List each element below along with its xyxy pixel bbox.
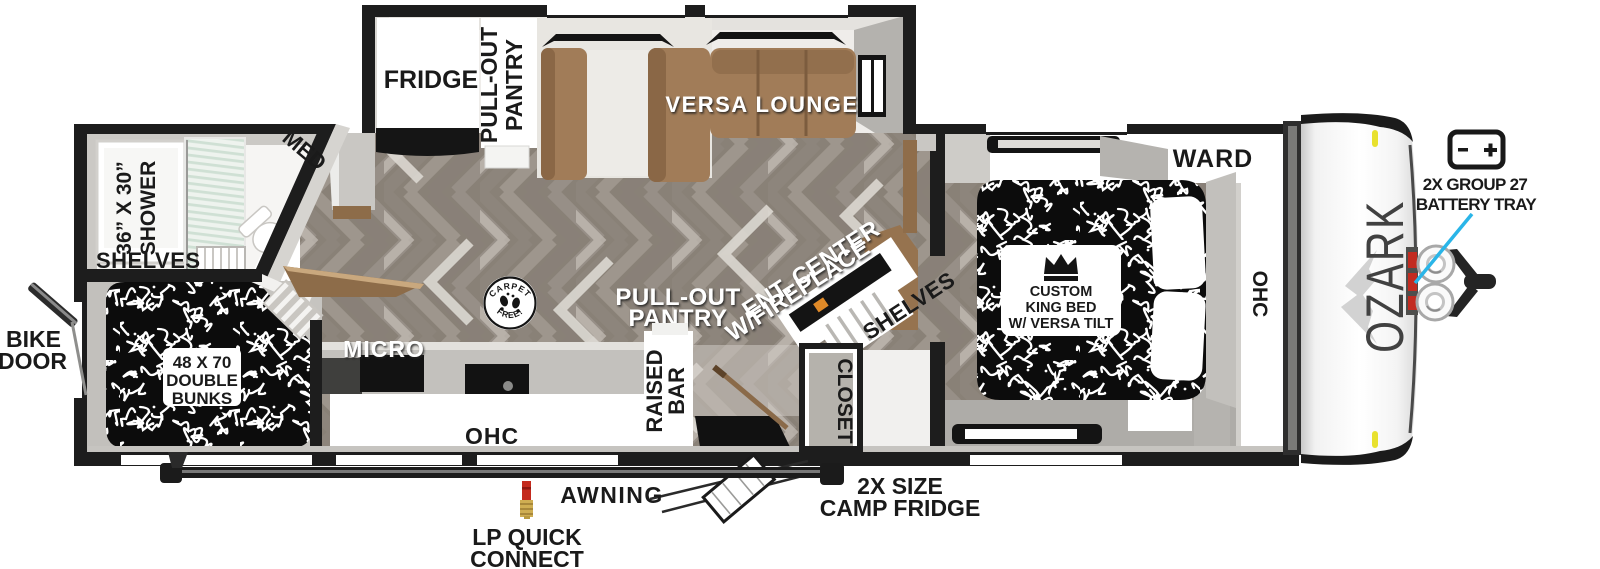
svg-text:DOOR: DOOR	[0, 348, 67, 374]
svg-text:36” X 30”: 36” X 30”	[113, 161, 136, 254]
svg-text:AWNING: AWNING	[560, 482, 664, 508]
svg-text:CONNECT: CONNECT	[470, 546, 584, 569]
svg-text:PULL-OUT: PULL-OUT	[476, 27, 502, 143]
svg-text:48 X 70: 48 X 70	[173, 353, 232, 372]
svg-text:BAR: BAR	[664, 367, 689, 415]
svg-text:BUNKS: BUNKS	[172, 389, 232, 408]
svg-text:OHC: OHC	[1248, 271, 1271, 318]
svg-text:CUSTOM: CUSTOM	[1030, 284, 1093, 300]
svg-text:FRIDGE: FRIDGE	[384, 66, 478, 94]
svg-text:OHC: OHC	[465, 423, 519, 449]
svg-text:2X GROUP 27: 2X GROUP 27	[1423, 175, 1528, 194]
svg-text:CAMP FRIDGE: CAMP FRIDGE	[820, 495, 981, 521]
svg-text:VERSA LOUNGE: VERSA LOUNGE	[665, 92, 858, 117]
svg-text:CLOSET: CLOSET	[833, 358, 856, 443]
svg-text:PANTRY: PANTRY	[501, 39, 527, 131]
svg-text:SHOWER: SHOWER	[137, 161, 160, 256]
svg-text:KING BED: KING BED	[1026, 300, 1097, 316]
svg-text:BATTERY TRAY: BATTERY TRAY	[1416, 195, 1538, 214]
svg-text:DOUBLE: DOUBLE	[166, 371, 238, 390]
svg-text:W/ VERSA TILT: W/ VERSA TILT	[1009, 316, 1114, 332]
svg-text:MICRO: MICRO	[343, 336, 425, 362]
svg-text:WARD: WARD	[1173, 145, 1253, 173]
